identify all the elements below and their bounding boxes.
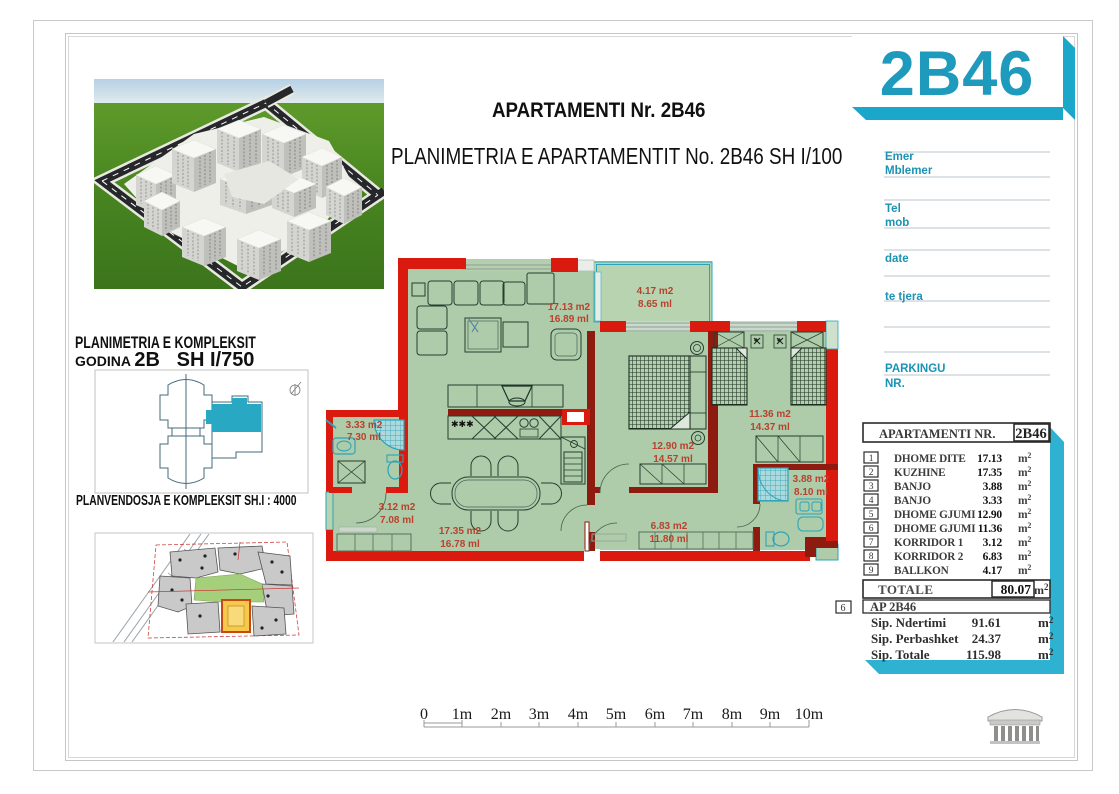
svg-text:DHOME GJUMI: DHOME GJUMI bbox=[894, 523, 975, 535]
svg-text:5: 5 bbox=[869, 510, 874, 520]
svg-text:8.65 ml: 8.65 ml bbox=[638, 299, 672, 310]
svg-text:m2: m2 bbox=[1018, 535, 1031, 549]
svg-text:91.61: 91.61 bbox=[972, 615, 1001, 630]
svg-text:8: 8 bbox=[869, 552, 874, 562]
svg-text:80.07: 80.07 bbox=[1001, 582, 1032, 597]
svg-text:m2: m2 bbox=[1018, 451, 1031, 465]
svg-text:8.10 ml: 8.10 ml bbox=[794, 487, 828, 498]
svg-text:2m: 2m bbox=[491, 706, 512, 723]
svg-text:17.13 m2: 17.13 m2 bbox=[548, 302, 591, 313]
svg-text:Mblemer: Mblemer bbox=[885, 165, 933, 177]
svg-text:24.37: 24.37 bbox=[972, 631, 1002, 646]
svg-text:APARTAMENTI NR.: APARTAMENTI NR. bbox=[879, 427, 995, 441]
svg-text:11.36: 11.36 bbox=[978, 523, 1003, 535]
svg-text:m2: m2 bbox=[1018, 465, 1031, 479]
svg-text:3.88: 3.88 bbox=[983, 481, 1003, 493]
svg-text:4m: 4m bbox=[568, 706, 589, 723]
svg-text:PARKINGU: PARKINGU bbox=[885, 363, 945, 375]
svg-text:m2: m2 bbox=[1018, 563, 1031, 577]
svg-text:mob: mob bbox=[885, 217, 909, 229]
svg-text:Emer: Emer bbox=[885, 151, 914, 163]
svg-text:Sip. Perbashket: Sip. Perbashket bbox=[871, 631, 959, 646]
svg-text:14.57 ml: 14.57 ml bbox=[653, 454, 693, 465]
svg-text:BANJO: BANJO bbox=[894, 481, 931, 493]
svg-text:5m: 5m bbox=[606, 706, 627, 723]
svg-text:7.30 ml: 7.30 ml bbox=[347, 432, 381, 443]
svg-text:Sip. Ndertimi: Sip. Ndertimi bbox=[871, 615, 947, 630]
svg-text:1: 1 bbox=[869, 454, 874, 464]
svg-text:m2: m2 bbox=[1018, 479, 1031, 493]
svg-text:11.80 ml: 11.80 ml bbox=[650, 534, 689, 545]
svg-text:Sip. Totale: Sip. Totale bbox=[871, 647, 930, 662]
svg-text:6: 6 bbox=[841, 603, 846, 614]
svg-text:16.89 ml: 16.89 ml bbox=[549, 314, 589, 325]
svg-text:3.12 m2: 3.12 m2 bbox=[379, 502, 416, 513]
svg-text:3.33 m2: 3.33 m2 bbox=[346, 420, 383, 431]
svg-text:6: 6 bbox=[869, 524, 874, 534]
svg-text:17.35 m2: 17.35 m2 bbox=[439, 526, 482, 537]
svg-text:Tel: Tel bbox=[885, 203, 901, 215]
svg-text:3: 3 bbox=[869, 482, 874, 492]
svg-text:date: date bbox=[885, 253, 909, 265]
svg-text:BALLKON: BALLKON bbox=[894, 565, 949, 577]
svg-text:te tjera: te tjera bbox=[885, 291, 923, 303]
svg-text:7: 7 bbox=[869, 538, 874, 548]
svg-text:DHOME GJUMI: DHOME GJUMI bbox=[894, 509, 975, 521]
svg-text:14.37 ml: 14.37 ml bbox=[750, 422, 790, 433]
svg-text:6.83 m2: 6.83 m2 bbox=[651, 521, 688, 532]
svg-text:12.90 m2: 12.90 m2 bbox=[652, 441, 695, 452]
svg-text:9m: 9m bbox=[760, 706, 781, 723]
svg-text:AP 2B46: AP 2B46 bbox=[870, 600, 916, 614]
svg-text:m2: m2 bbox=[1018, 521, 1031, 535]
svg-text:2: 2 bbox=[869, 468, 874, 478]
svg-text:DHOME DITE: DHOME DITE bbox=[894, 453, 966, 465]
svg-text:7m: 7m bbox=[683, 706, 704, 723]
svg-text:11.36 m2: 11.36 m2 bbox=[749, 409, 791, 420]
svg-text:m2: m2 bbox=[1018, 493, 1031, 507]
svg-text:7.08 ml: 7.08 ml bbox=[380, 515, 414, 526]
svg-text:2B46: 2B46 bbox=[1015, 426, 1046, 442]
svg-text:m2: m2 bbox=[1018, 549, 1031, 563]
svg-text:16.78 ml: 16.78 ml bbox=[440, 539, 480, 550]
svg-text:17.13: 17.13 bbox=[977, 453, 1002, 465]
svg-text:m2: m2 bbox=[1018, 507, 1031, 521]
svg-text:3.12: 3.12 bbox=[983, 537, 1003, 549]
svg-text:3m: 3m bbox=[529, 706, 550, 723]
svg-text:BANJO: BANJO bbox=[894, 495, 931, 507]
svg-text:TOTALE: TOTALE bbox=[878, 582, 933, 597]
svg-text:4.17: 4.17 bbox=[983, 565, 1003, 577]
svg-text:KUZHINE: KUZHINE bbox=[894, 467, 945, 479]
svg-text:2B46: 2B46 bbox=[880, 39, 1035, 109]
svg-text:✱✱✱: ✱✱✱ bbox=[451, 419, 474, 429]
svg-text:4.17 m2: 4.17 m2 bbox=[637, 286, 674, 297]
svg-text:12.90: 12.90 bbox=[977, 509, 1002, 521]
svg-text:6m: 6m bbox=[645, 706, 666, 723]
svg-text:6.83: 6.83 bbox=[983, 551, 1003, 563]
svg-text:4: 4 bbox=[869, 496, 874, 506]
svg-text:115.98: 115.98 bbox=[966, 647, 1002, 662]
svg-text:8m: 8m bbox=[722, 706, 743, 723]
svg-text:3.88 m2: 3.88 m2 bbox=[793, 474, 830, 485]
svg-text:3.33: 3.33 bbox=[983, 495, 1003, 507]
svg-text:KORRIDOR 1: KORRIDOR 1 bbox=[894, 537, 964, 549]
svg-text:9: 9 bbox=[869, 566, 874, 576]
svg-text:NR.: NR. bbox=[885, 378, 905, 390]
svg-text:17.35: 17.35 bbox=[977, 467, 1002, 479]
svg-text:KORRIDOR 2: KORRIDOR 2 bbox=[894, 551, 964, 563]
